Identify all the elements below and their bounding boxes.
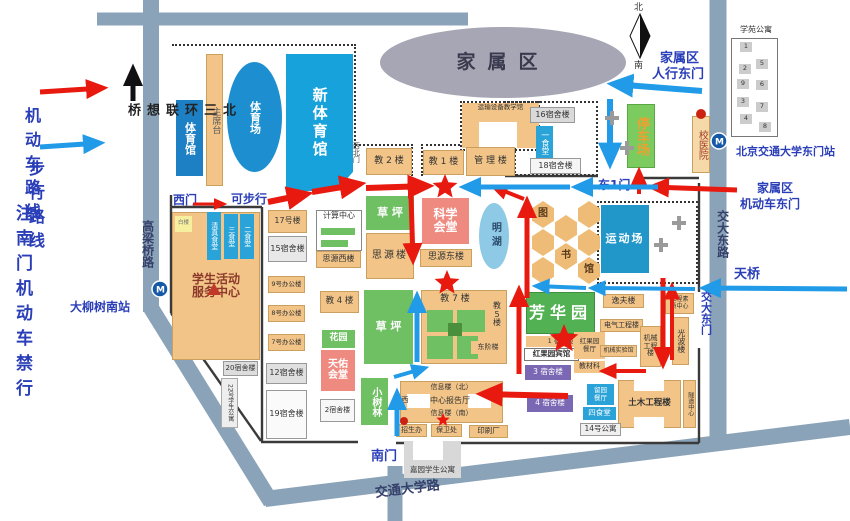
vehicle-route-arrow	[268, 194, 307, 202]
poi-dot	[400, 417, 408, 425]
cross-deco	[654, 243, 668, 247]
poi-star	[550, 324, 579, 351]
poi-star	[436, 413, 449, 426]
vehicle-route-arrow	[411, 196, 413, 260]
vehicle-route-arrow	[312, 184, 360, 192]
routes-layer: MM	[0, 0, 850, 521]
metro-letter: M	[715, 138, 724, 148]
vehicle-route-arrow	[40, 88, 103, 92]
legend-note: 注:南门机动 车禁行	[16, 199, 44, 399]
walk-route-arrow	[613, 84, 702, 91]
cross-deco	[620, 146, 634, 150]
walk-route-arrow	[40, 143, 100, 147]
campus-map: 北南 体育馆主席台体育场新体育馆家属区后勤集团运输设备教学馆16宿舍楼一食堂18…	[0, 0, 850, 521]
poi-star	[433, 174, 458, 198]
vehicle-route-arrow	[482, 394, 568, 396]
walk-route-arrow	[536, 286, 586, 288]
walk-route-arrow	[704, 288, 847, 289]
vehicle-route-arrow	[652, 187, 737, 190]
cross-deco	[605, 116, 619, 120]
poi-triangle	[207, 283, 221, 295]
poi-star	[435, 270, 460, 294]
north-bridge-label: 北三环联想桥	[123, 103, 237, 116]
metro-letter: M	[156, 286, 165, 296]
walk-route-arrow	[394, 368, 425, 377]
cross-deco	[672, 221, 686, 225]
poi-dot	[696, 109, 706, 119]
vehicle-route-arrow	[366, 186, 428, 188]
walk-route-arrow	[592, 288, 695, 289]
